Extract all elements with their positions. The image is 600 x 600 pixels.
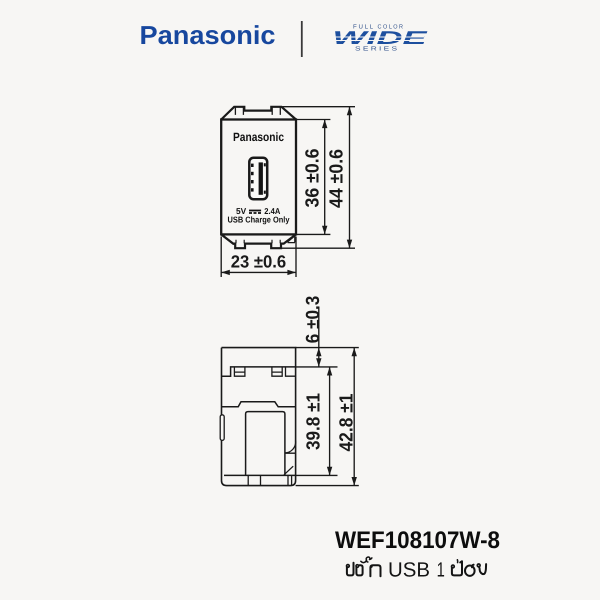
svg-text:42.8 ±1: 42.8 ±1 xyxy=(337,393,358,451)
svg-text:USB Charge Only: USB Charge Only xyxy=(228,215,290,225)
svg-text:Panasonic: Panasonic xyxy=(233,130,284,144)
svg-text:36 ±0.6: 36 ±0.6 xyxy=(302,149,323,208)
svg-text:39.8 ±1: 39.8 ±1 xyxy=(304,393,325,450)
svg-text:6 ±0.3: 6 ±0.3 xyxy=(303,296,324,344)
svg-text:1: 1 xyxy=(437,558,445,581)
svg-text:23 ±0.6: 23 ±0.6 xyxy=(231,252,287,272)
svg-text:44 ±0.6: 44 ±0.6 xyxy=(327,149,348,208)
svg-text:Panasonic: Panasonic xyxy=(140,20,276,50)
svg-text:USB: USB xyxy=(388,558,430,581)
svg-text:WEF108107W-8: WEF108107W-8 xyxy=(335,527,500,554)
